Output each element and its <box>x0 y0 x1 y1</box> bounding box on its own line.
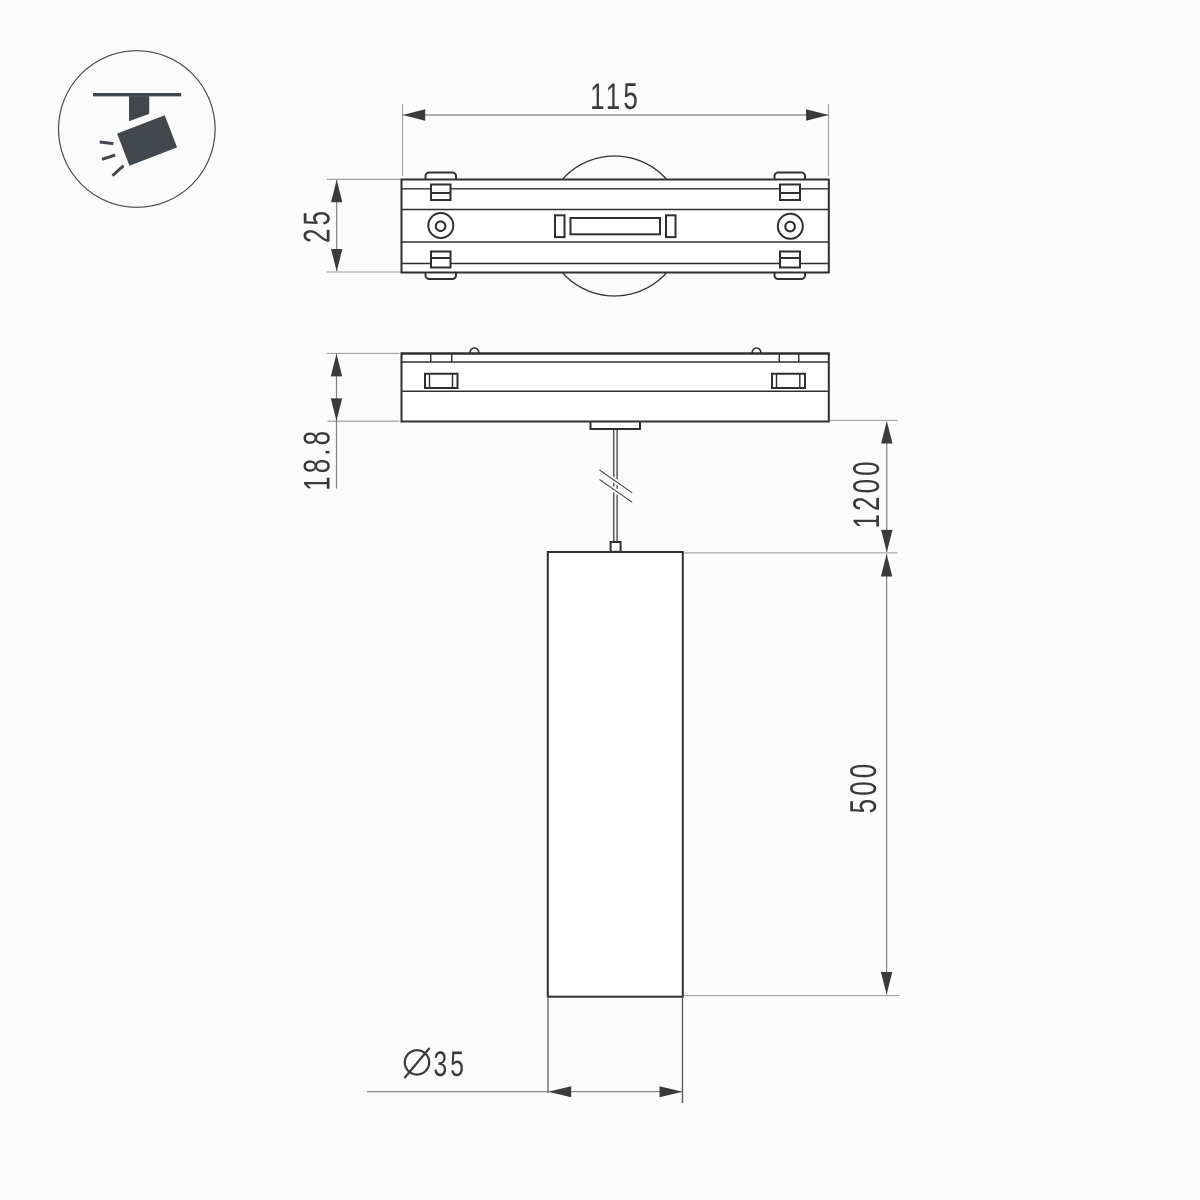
svg-text:500: 500 <box>842 761 884 814</box>
svg-text:115: 115 <box>590 75 641 117</box>
svg-text:1200: 1200 <box>845 458 887 528</box>
svg-text:35: 35 <box>434 1046 468 1084</box>
svg-text:18.8: 18.8 <box>296 428 338 491</box>
svg-text:25: 25 <box>296 208 338 243</box>
